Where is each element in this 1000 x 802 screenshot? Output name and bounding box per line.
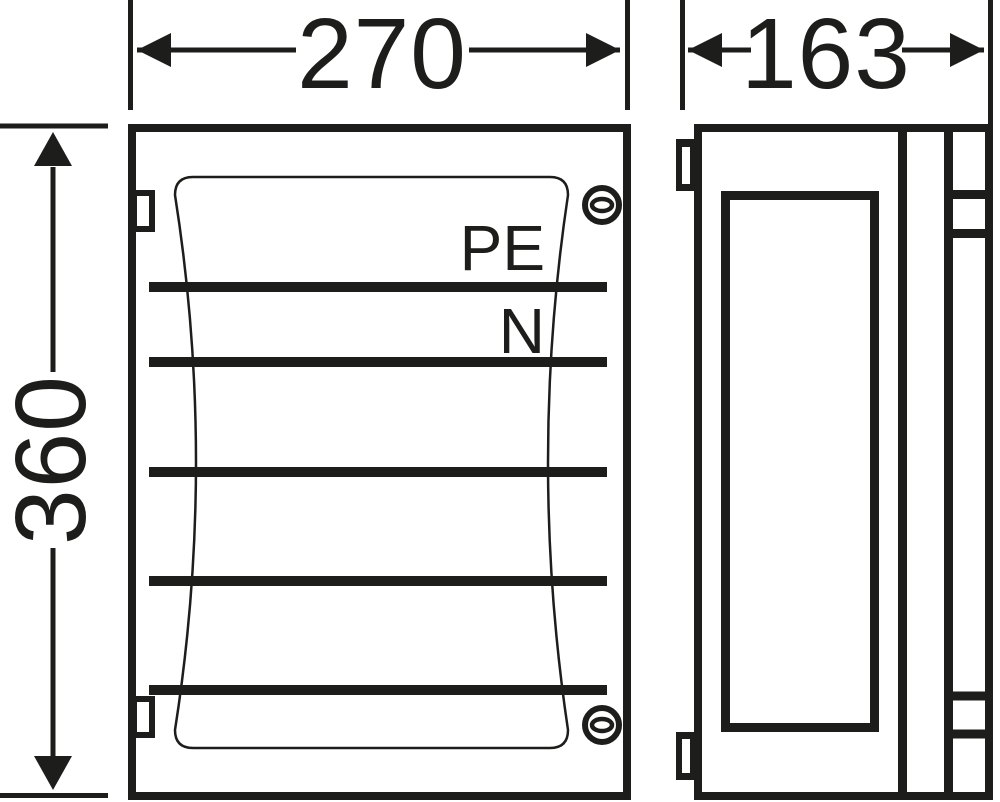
pe-busbar-label: PE — [460, 212, 545, 284]
front-enclosure-outline — [132, 128, 627, 796]
side-depth-value: 163 — [741, 0, 911, 110]
technical-drawing-canvas: PE N 2 — [0, 0, 1000, 802]
side-cover-profile — [726, 196, 875, 728]
front-width-value: 270 — [297, 0, 467, 110]
front-hinge-tab-bottom — [134, 699, 152, 735]
n-busbar-label: N — [499, 295, 545, 367]
side-view — [676, 128, 989, 796]
front-view: PE N — [132, 128, 627, 796]
front-height-value: 360 — [0, 375, 107, 545]
enclosure-drawing: PE N 2 — [0, 0, 1000, 802]
front-hinge-tab-top — [134, 193, 152, 229]
